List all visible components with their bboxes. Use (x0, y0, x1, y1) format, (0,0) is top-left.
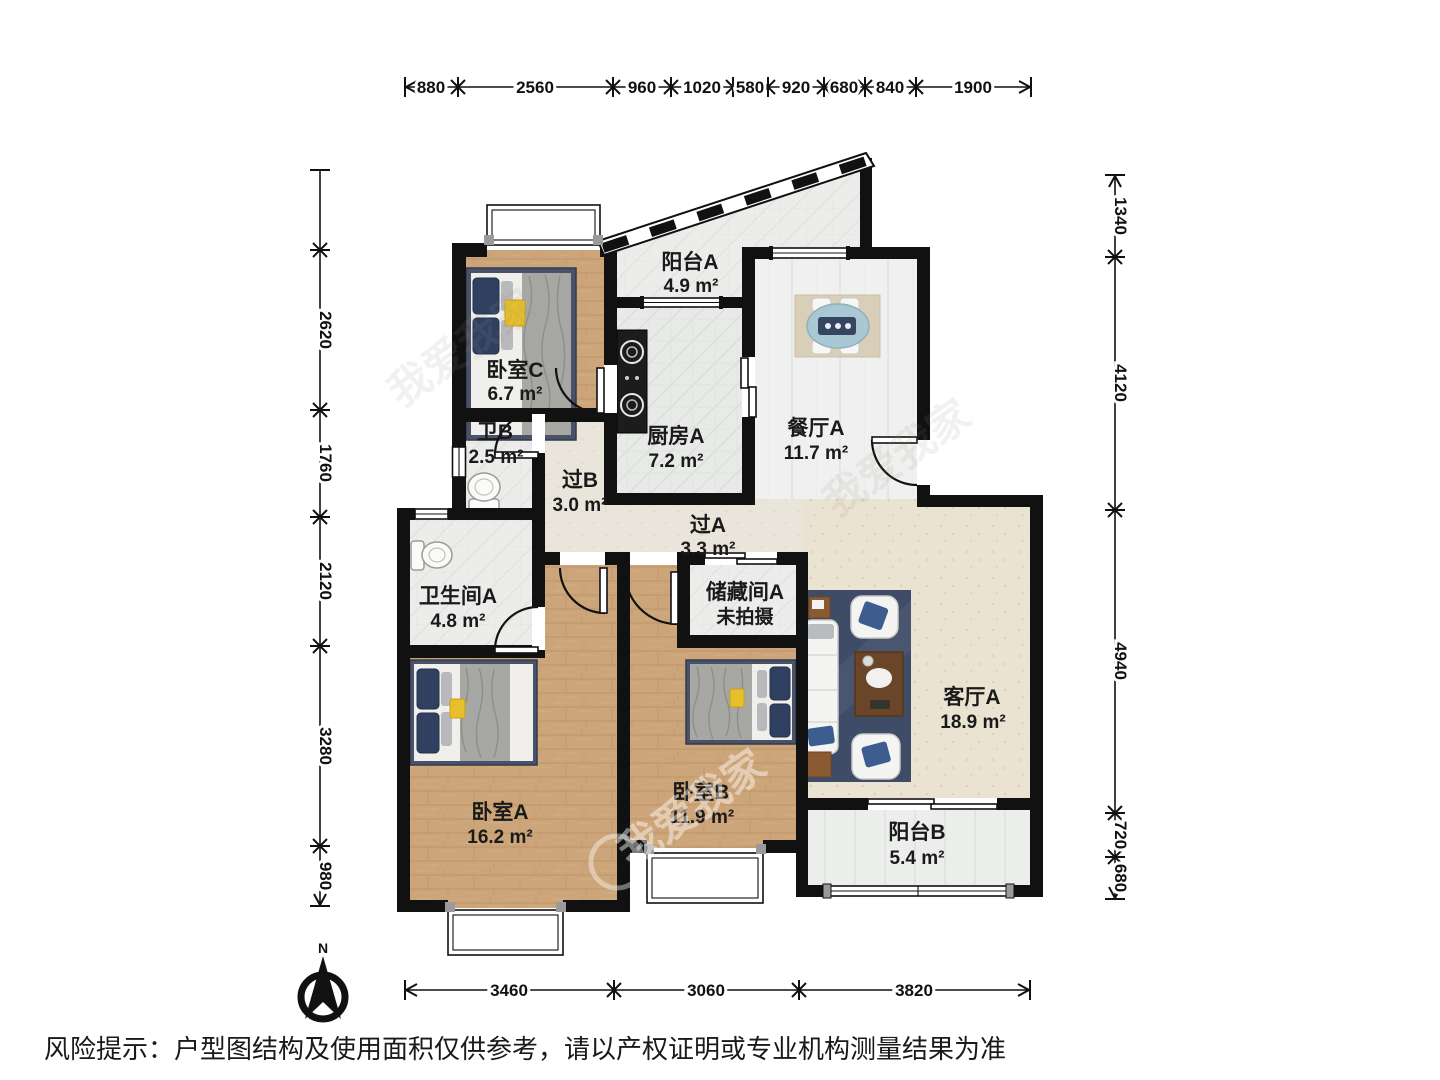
room-area-bath-a: 4.8 m² (431, 611, 486, 632)
dim-right-4: 680 (1111, 864, 1130, 892)
bed-bedroom-b (686, 660, 796, 744)
slider-balcony-b (868, 798, 997, 810)
dining-set (795, 295, 880, 357)
dim-top-1: 2560 (516, 78, 554, 97)
room-name-storage-a: 储藏间A (706, 580, 784, 604)
risk-disclaimer: 风险提示：户型图结构及使用面积仅供参考，请以产权证明或专业机构测量结果为准 (44, 1034, 1006, 1064)
window-kitchen (640, 296, 723, 309)
slider-kitchen (741, 357, 756, 417)
room-area-storage-a: 未拍摄 (715, 605, 774, 628)
dim-right-2: 4940 (1111, 642, 1130, 680)
room-area-bedroom-a: 16.2 m² (467, 827, 532, 848)
room-area-hall-a: 3.3 m² (681, 539, 736, 560)
compass-north-label: N (318, 940, 328, 956)
dim-top-0: 880 (417, 78, 445, 97)
toilet-b (468, 473, 500, 512)
room-area-balcony-a: 4.9 m² (664, 276, 719, 297)
living-room-set (803, 590, 911, 782)
room-name-balcony-a: 阳台A (661, 250, 718, 274)
dim-top-5: 920 (782, 78, 810, 97)
dim-left-1: 1760 (316, 444, 335, 482)
room-area-kitchen: 7.2 m² (649, 451, 704, 472)
room-area-living: 18.9 m² (940, 712, 1005, 733)
floorplan-page: 阳台A 4.9 m² 卧室C 6.7 m² 厨房A 7.2 m² 餐厅A 11.… (0, 0, 1440, 1080)
window-dining (769, 246, 850, 260)
dim-top-2: 960 (628, 78, 656, 97)
room-name-balcony-b: 阳台B (888, 820, 945, 844)
dim-bottom-2: 3820 (895, 981, 933, 1000)
dim-left-0: 2620 (316, 311, 335, 349)
room-name-dining: 餐厅A (787, 416, 844, 440)
room-area-toilet-b: 2.5 m² (469, 447, 524, 468)
bay-window-bedroom-a (445, 902, 566, 955)
dim-top-7: 840 (876, 78, 904, 97)
room-name-hall-a: 过A (690, 513, 726, 537)
dim-right-0: 1340 (1111, 197, 1130, 235)
dim-left-2: 2120 (316, 562, 335, 600)
dimension-right: 1340 4120 4940 720 680 (1105, 175, 1130, 899)
window-bath-a (415, 509, 448, 519)
dim-left-4: 980 (316, 862, 335, 890)
room-name-bath-a: 卫生间A (419, 584, 497, 608)
dimension-bottom: 3460 3060 3820 (405, 980, 1030, 1000)
room-name-bedroom-a: 卧室A (471, 800, 528, 824)
dimension-left: 2620 1760 2120 3280 980 (310, 170, 335, 906)
room-name-hall-b: 过B (562, 468, 598, 492)
floorplan-canvas: 阳台A 4.9 m² 卧室C 6.7 m² 厨房A 7.2 m² 餐厅A 11.… (0, 0, 1440, 1080)
stove (617, 330, 647, 433)
room-area-bedroom-c: 6.7 m² (488, 384, 543, 405)
dim-top-4: 580 (736, 78, 764, 97)
dimension-top: 880 2560 960 1020 580 920 680 840 1900 (405, 77, 1031, 97)
bay-window-bedroom-c (484, 205, 603, 245)
dim-top-6: 680 (830, 78, 858, 97)
room-name-living: 客厅A (943, 685, 1000, 709)
dim-top-8: 1900 (954, 78, 992, 97)
dim-right-1: 4120 (1111, 364, 1130, 402)
window-balcony-b (823, 884, 1014, 898)
room-area-dining: 11.7 m² (784, 443, 848, 464)
room-name-kitchen: 厨房A (647, 424, 704, 448)
room-name-toilet-b: 卫B (477, 421, 513, 444)
window-toilet-b (453, 447, 466, 477)
room-name-bedroom-c: 卧室C (486, 358, 543, 382)
north-compass-icon: N (301, 940, 345, 1019)
dim-bottom-0: 3460 (490, 981, 528, 1000)
room-area-balcony-b: 5.4 m² (890, 848, 945, 869)
room-area-hall-b: 3.0 m² (553, 495, 608, 516)
dim-bottom-1: 3060 (687, 981, 725, 1000)
bed-bedroom-a (410, 660, 537, 765)
dim-top-3: 1020 (683, 78, 721, 97)
toilet-a (411, 541, 452, 570)
dim-left-3: 3280 (316, 727, 335, 765)
dim-right-3: 720 (1111, 821, 1130, 849)
